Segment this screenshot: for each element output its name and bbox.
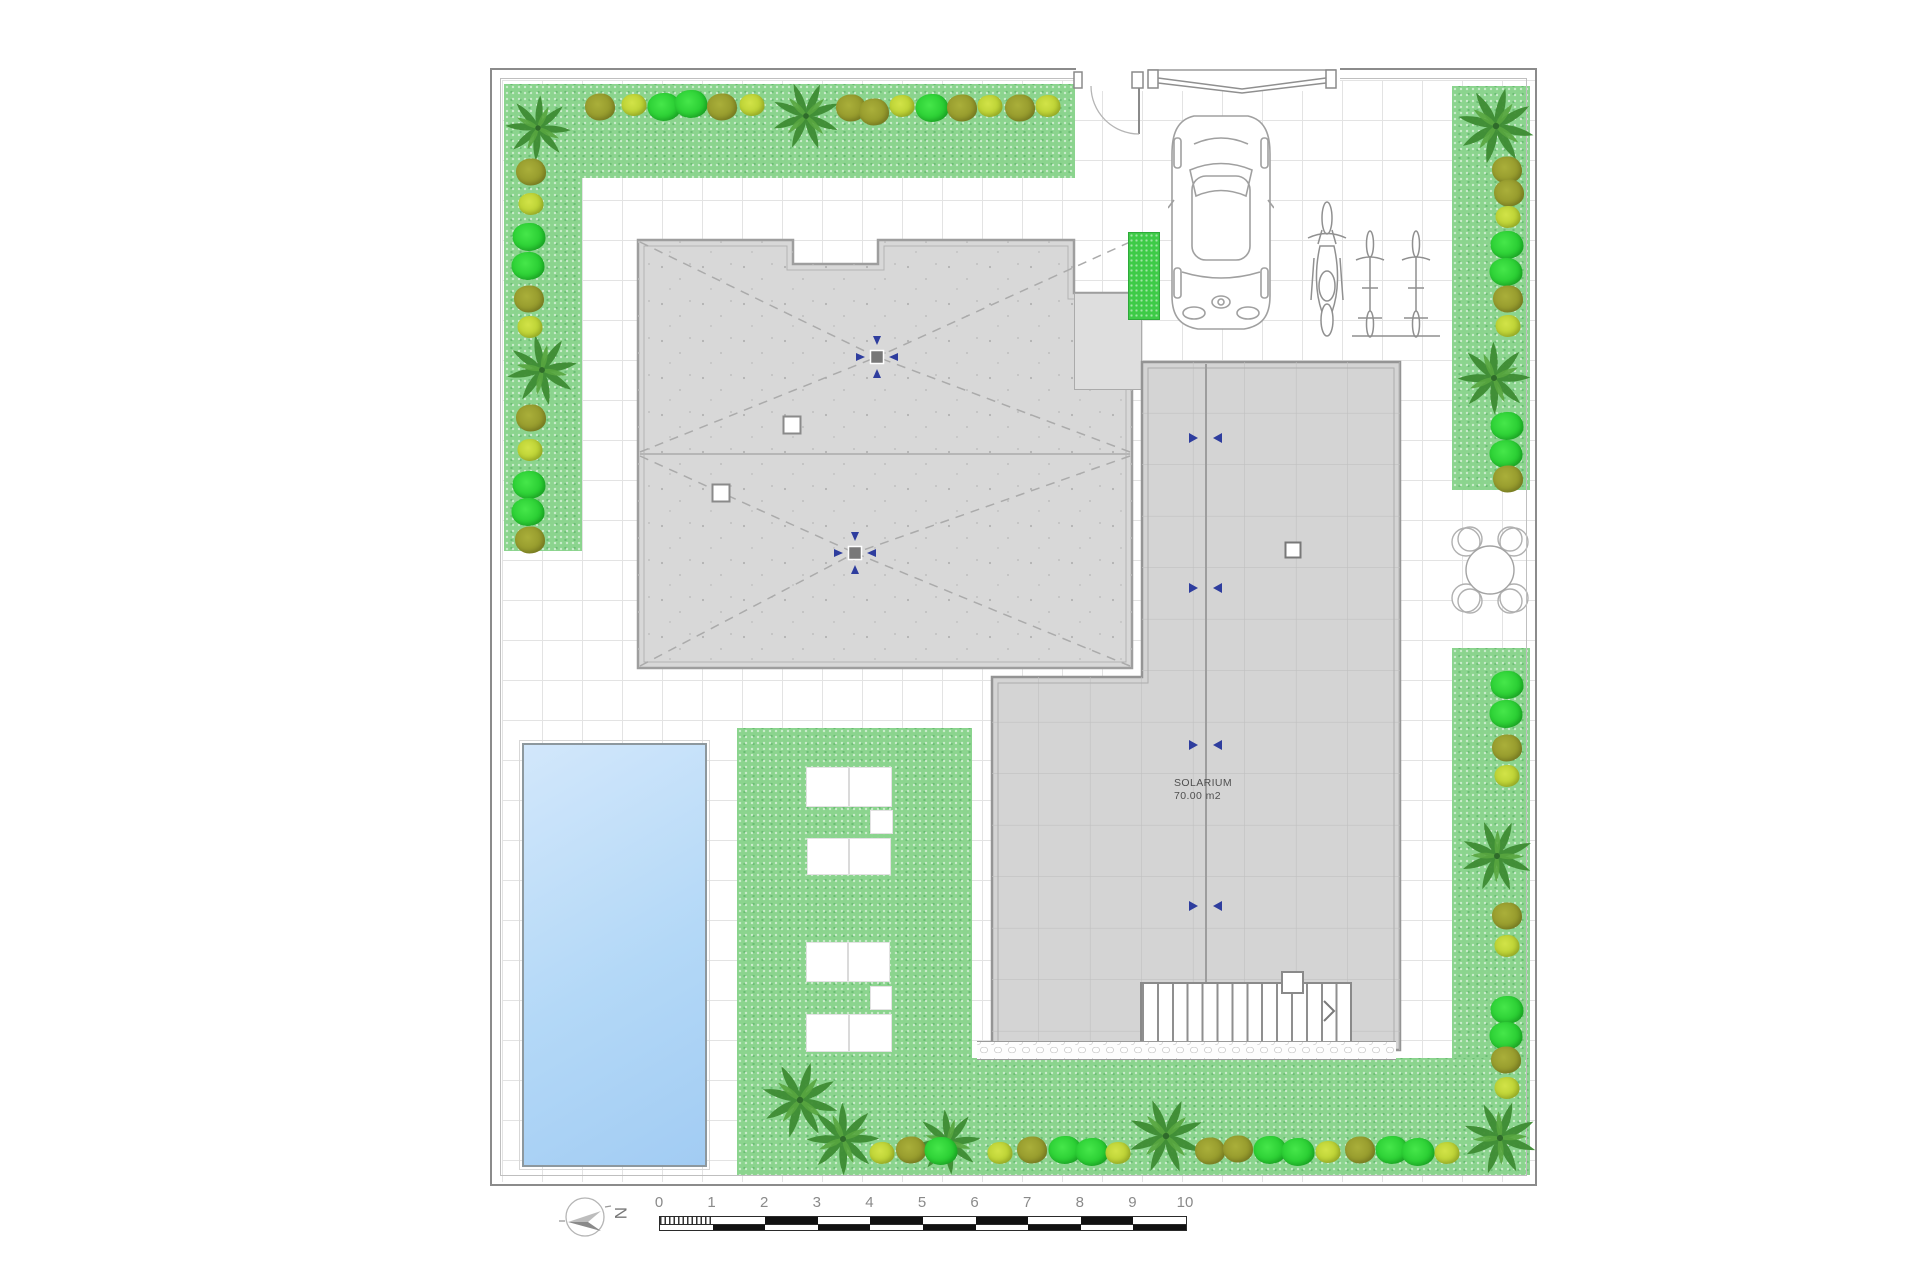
shrub-icon [516, 159, 546, 186]
scale-bar: 0 1 2 3 4 5 6 7 8 9 10 [640, 1192, 1200, 1236]
shrub-icon [740, 94, 765, 116]
shrub-icon [707, 94, 737, 121]
door-jamb [1074, 72, 1082, 88]
scale-tick-label: 5 [918, 1194, 926, 1211]
shrub-icon [1195, 1138, 1225, 1165]
shrub-icon [1495, 765, 1520, 787]
shrub-icon [1223, 1136, 1253, 1163]
shrub-icon [1495, 1077, 1520, 1099]
shrub-icon [1491, 996, 1524, 1024]
palm-tree-icon [503, 331, 581, 409]
palm-tree-icon [1459, 1097, 1541, 1179]
shrub-icon [1005, 95, 1035, 122]
shrub-icon [1496, 315, 1521, 337]
vehicle-gate-leaves [1158, 78, 1326, 93]
shrub-icon [518, 439, 543, 461]
scale-tick-label: 3 [813, 1194, 821, 1211]
palm-tree-icon [1457, 816, 1537, 896]
shrub-icon [1490, 440, 1523, 468]
shrub-icon [516, 405, 546, 432]
scale-tick-label: 8 [1076, 1194, 1084, 1211]
shrub-icon [518, 316, 543, 338]
shrub-icon [1282, 1138, 1315, 1166]
scale-tick-label: 10 [1177, 1194, 1194, 1211]
shrub-icon [1106, 1142, 1131, 1164]
scale-bar-strip [659, 1216, 1187, 1231]
shrub-icon [1491, 1047, 1521, 1074]
shrub-icon [1492, 735, 1522, 762]
shrub-icon [512, 498, 545, 526]
entrance-gates [1060, 60, 1350, 144]
shrub-icon [1076, 1138, 1109, 1166]
shrub-icon [1491, 231, 1524, 259]
shrub-icon [512, 252, 545, 280]
scale-bar-row-bottom [660, 1224, 1186, 1231]
palm-tree-icon [803, 1099, 883, 1179]
scale-tick-label: 1 [707, 1194, 715, 1211]
shrub-icon [1495, 935, 1520, 957]
palm-tree-icon [1454, 84, 1539, 169]
shrub-icon [1402, 1138, 1435, 1166]
shrub-icon [1493, 286, 1523, 313]
shrub-icon [1036, 95, 1061, 117]
shrub-icon [988, 1142, 1013, 1164]
north-needle-light [568, 1211, 601, 1222]
shrub-icon [513, 223, 546, 251]
site-plan-canvas: SOLARIUM 70.00 m2 [0, 0, 1920, 1280]
scale-tick-label: 4 [865, 1194, 873, 1211]
shrub-icon [1490, 258, 1523, 286]
shrub-icon [859, 99, 889, 126]
shrub-icon [1435, 1142, 1460, 1164]
shrub-icon [870, 1142, 895, 1164]
shrub-icon [585, 94, 615, 121]
shrub-icon [513, 471, 546, 499]
palm-tree-icon [1454, 338, 1534, 418]
shrub-icon [622, 94, 647, 116]
shrub-icon [1494, 180, 1524, 207]
scale-tick-label: 7 [1023, 1194, 1031, 1211]
door-jamb [1132, 72, 1143, 88]
door-swing-arc [1091, 86, 1139, 134]
shrub-icon [978, 95, 1003, 117]
shrub-icon [896, 1137, 926, 1164]
shrub-icon [1345, 1137, 1375, 1164]
gate-post [1148, 70, 1158, 88]
shrub-icon [1316, 1141, 1341, 1163]
palm-tree-icon [502, 92, 574, 164]
scale-tick-label: 0 [655, 1194, 663, 1211]
palm-tree-icon [1124, 1094, 1208, 1178]
shrub-icon [1491, 412, 1524, 440]
scale-tick-label: 6 [970, 1194, 978, 1211]
shrub-icon [1017, 1137, 1047, 1164]
shrub-icon [925, 1137, 958, 1165]
shrub-icon [916, 94, 949, 122]
north-needle-dark [568, 1222, 601, 1231]
shrub-icon [890, 95, 915, 117]
north-label: N [611, 1207, 630, 1219]
boundary-wall-inner-line [500, 78, 1527, 1176]
shrub-icon [1491, 671, 1524, 699]
north-arrow: N [556, 1186, 636, 1250]
gate-post [1326, 70, 1336, 88]
scale-tick-label: 9 [1128, 1194, 1136, 1211]
shrub-icon [519, 193, 544, 215]
shrub-icon [947, 95, 977, 122]
palm-tree-icon [768, 78, 844, 154]
shrub-icon [1496, 206, 1521, 228]
shrub-icon [675, 90, 708, 118]
scale-tick-label: 2 [760, 1194, 768, 1211]
shrub-icon [1490, 700, 1523, 728]
shrub-icon [514, 286, 544, 313]
shrub-icon [1493, 466, 1523, 493]
shrub-icon [515, 527, 545, 554]
shrub-icon [1492, 903, 1522, 930]
